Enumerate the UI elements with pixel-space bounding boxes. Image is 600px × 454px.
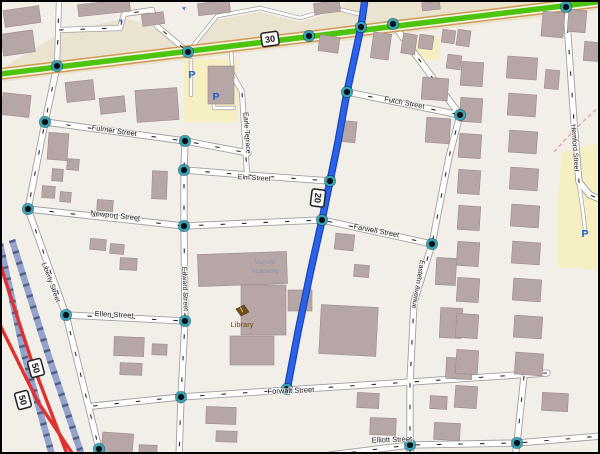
building [114, 336, 145, 356]
building [455, 349, 479, 374]
building [90, 238, 107, 250]
map-node[interactable] [53, 62, 61, 70]
building [42, 186, 56, 199]
building [318, 35, 340, 54]
building [319, 305, 378, 357]
building [446, 54, 462, 70]
street-label: Forwalt Street [267, 385, 315, 396]
building [456, 277, 480, 302]
building [455, 313, 479, 338]
building [511, 241, 540, 265]
street-label: Farwell Street [353, 222, 401, 240]
map-node[interactable] [181, 317, 189, 325]
building [418, 34, 434, 50]
map-node[interactable] [184, 48, 192, 56]
building [401, 33, 418, 55]
building [583, 41, 598, 61]
building [206, 406, 237, 424]
building [67, 159, 80, 171]
building [110, 243, 125, 254]
building [421, 77, 448, 101]
map-node[interactable] [180, 166, 188, 174]
building [514, 352, 543, 376]
building [457, 169, 481, 194]
building [456, 29, 471, 47]
route-shield-number: 20 [312, 192, 323, 203]
street-label: Fulmer Street [91, 123, 138, 138]
building [434, 422, 461, 440]
map-canvas[interactable]: ➤➤PPPLibraryFulmer StreetFutch StreetNew… [2, 2, 598, 452]
fulmer-street[interactable] [45, 122, 248, 153]
map-node[interactable] [513, 439, 521, 447]
building [135, 88, 179, 123]
street-label: Elm Street [238, 174, 271, 183]
map-node[interactable] [456, 111, 464, 119]
building [512, 278, 541, 302]
building [460, 61, 484, 86]
elliott-street[interactable] [330, 436, 598, 452]
building [65, 80, 95, 103]
building [510, 204, 539, 228]
building [457, 205, 481, 230]
building [3, 6, 41, 28]
map-node[interactable] [389, 20, 397, 28]
place-label: Vanetti [255, 259, 276, 266]
building [52, 169, 64, 182]
building [354, 264, 370, 277]
building [370, 418, 397, 436]
place-label: Academy [251, 268, 280, 275]
building [456, 241, 480, 266]
library-label: Library [231, 320, 254, 329]
building [216, 431, 237, 443]
street-label: Elliott Street [372, 434, 414, 444]
building [541, 11, 565, 38]
building [513, 315, 542, 339]
map-node[interactable] [305, 32, 313, 40]
building [441, 29, 456, 44]
building [139, 445, 157, 452]
building [334, 233, 355, 251]
building [120, 363, 142, 376]
parking-icon[interactable]: P [212, 91, 219, 103]
street-label: Futch Street [384, 94, 427, 111]
map-node[interactable] [318, 216, 326, 224]
building [2, 93, 31, 118]
map-node[interactable] [181, 137, 189, 145]
route-shield: 20 [310, 189, 326, 208]
map-node[interactable] [41, 118, 49, 126]
building [567, 9, 587, 32]
map-node[interactable] [177, 393, 185, 401]
oneway-arrow-icon: ➤ [180, 4, 188, 12]
building [47, 132, 69, 160]
map-viewport[interactable]: ➤➤PPPLibraryFulmer StreetFutch StreetNew… [0, 0, 600, 454]
building [506, 56, 537, 80]
trunk-2[interactable] [2, 325, 78, 452]
map-node[interactable] [180, 222, 188, 230]
route-shield: 30 [261, 31, 280, 47]
map-node[interactable] [428, 240, 436, 248]
building [370, 32, 391, 60]
building [507, 93, 536, 117]
building [425, 117, 451, 144]
building [230, 336, 274, 365]
building [458, 133, 482, 158]
building [120, 258, 138, 271]
route-shield: 50 [14, 390, 32, 410]
building [152, 171, 168, 200]
parking-icon[interactable]: P [581, 228, 588, 240]
building [435, 257, 456, 285]
building [509, 167, 538, 191]
map-node[interactable] [562, 3, 570, 11]
map-node[interactable] [326, 177, 334, 185]
map-node[interactable] [357, 23, 365, 31]
building [422, 2, 441, 11]
building [357, 392, 380, 408]
top-left-street[interactable] [57, 2, 59, 66]
building [454, 385, 477, 408]
building [60, 192, 72, 203]
building [152, 344, 167, 356]
building [430, 396, 448, 410]
building [544, 69, 560, 89]
route-shield-number: 30 [264, 34, 275, 45]
building [2, 30, 35, 56]
map-node[interactable] [24, 205, 32, 213]
building [99, 96, 126, 115]
building [508, 130, 537, 154]
building [101, 432, 133, 452]
map-node[interactable] [95, 445, 103, 452]
forwalt-street[interactable] [93, 373, 547, 406]
building [542, 392, 569, 411]
map-node[interactable] [62, 311, 70, 319]
parking-icon[interactable]: P [188, 69, 195, 81]
map-node[interactable] [343, 88, 351, 96]
